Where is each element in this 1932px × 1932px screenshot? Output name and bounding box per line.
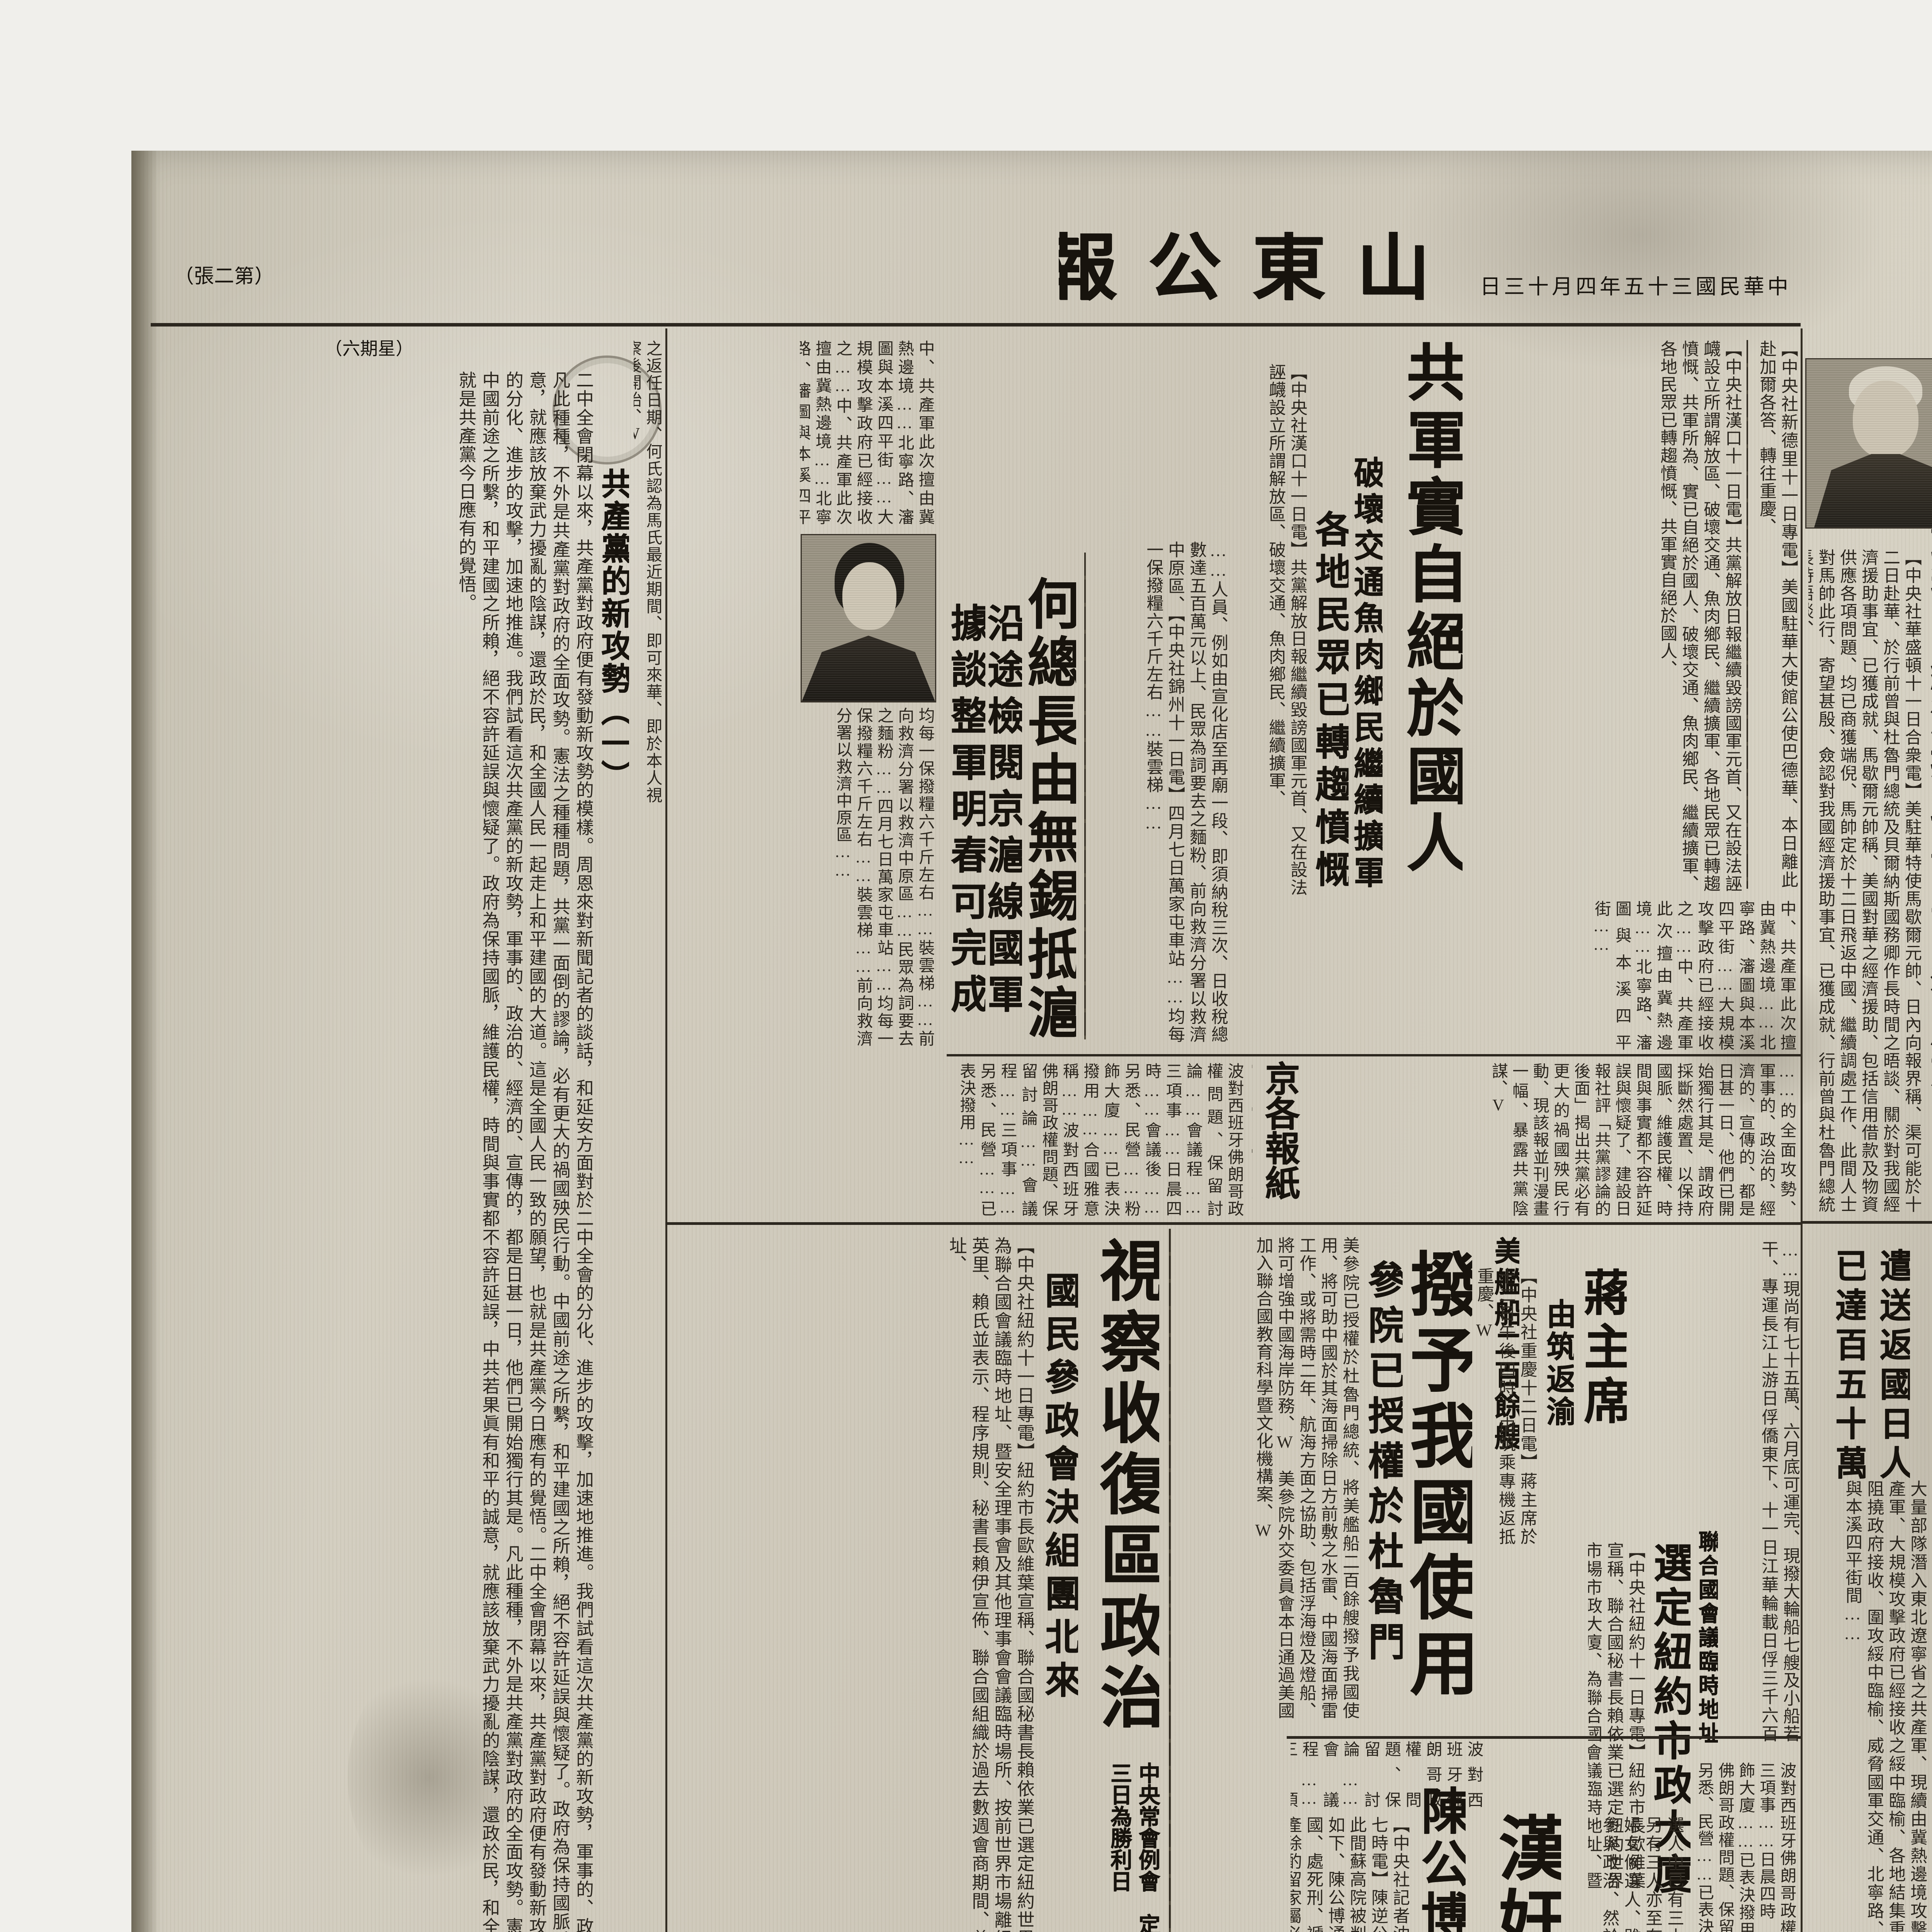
section-rule xyxy=(947,1054,1801,1056)
body-jing: ……的全面攻勢、軍事的、政治的、經濟的、宣傳的、都是日甚一日、他們已開始獨行其是… xyxy=(1314,1063,1797,1217)
subhead-jiang: 由筑返渝 xyxy=(1544,1298,1574,1430)
weekday-label: （星期六） xyxy=(325,340,413,358)
body-meijian-left: 美參院已授權於杜魯門總統、將美艦船二百餘艘撥予我國使用、將可助中國於其海面掃除日… xyxy=(1182,1236,1360,1719)
headline-he: 何總長由無錫抵滬 xyxy=(1022,576,1076,1043)
dateline: 中華民國三十五年四月十三日 xyxy=(1480,276,1791,297)
headline-repatriation-2: 已達百五十萬 xyxy=(1832,1248,1866,1492)
body-he: ……人員、例如由宣化店至再廟一段、即須納稅三次、日收稅總數達五百萬元以上、民眾為… xyxy=(1090,541,1229,1043)
filler-col: 波對西班牙佛朗哥政權問題、保留討論……會議程……三項事……日晨四時……會議後……… xyxy=(1696,1762,1797,1932)
body-dongbei: 【中央社臨榆十一日電】向遼寧省境內北寧路綏中臨榆間集結大量部隊潛入東北遼寧省之共… xyxy=(1808,1480,1932,1932)
subhead-meijian: 參院已授權於杜魯門 xyxy=(1364,1260,1403,1669)
body-gongjun: 【中央社漢口十一日電】共黨解放日報繼續毀謗國軍元首、又在設法誣衊設立所謂解放區、… xyxy=(1488,340,1743,893)
edition-label: （第二張） xyxy=(174,267,274,287)
body-gongjun-right-col: 【中央社新德里十一日專電】美國駐華大使館公使巴德華、本日離此赴加爾各答、轉往重慶… xyxy=(1756,340,1799,889)
thin-divider xyxy=(1747,340,1748,889)
thin-divider xyxy=(1084,553,1086,1039)
editorial-title: 共產黨的新攻勢（一） xyxy=(598,468,629,788)
body-marshall-tail: 之返任日期、何氏認為馬氏最近期間、即可來華、即於本人視察後開始、W xyxy=(634,340,663,804)
filler-col: 中、共產軍此次擅由冀熱邊境……北寧路、瀋圖與本溪四平街……大規模攻擊政府已經接收… xyxy=(800,340,935,526)
headline-gongjun: 共軍實自絕於國人 xyxy=(1401,340,1463,879)
filler-col: 均每一保撥糧六千斤左右……裝雲梯……前向救濟分署以救濟中原區……民眾為詞要去之麵… xyxy=(804,707,935,1047)
editorial-body: 二中全會閉幕以來，共產黨對政府便有發動新攻勢的模樣。周恩來對新聞記者的談話，和延… xyxy=(155,371,595,1932)
headline-changhui: 中央常會例會 定九月三日為勝利日 xyxy=(1103,1762,1161,1932)
body-hanjian: 【中央社記者沈宗琳蘇州十二日下午七時電】陳逆公博、今日下午四時在此間蘇高院被判處… xyxy=(1291,1816,1410,1932)
filler-col: 波對西班牙佛朗哥政權問題、保留討論……會議程……三項事……日晨四時……會議後……… xyxy=(672,1063,1244,1217)
column-divider xyxy=(665,328,667,1932)
headline-hanjian: 漢奸下場 xyxy=(1492,1812,1561,1932)
headline-meijian: 撥予我國使用 xyxy=(1403,1248,1472,1704)
photo-marshall-portrait xyxy=(1806,359,1932,527)
body-japan-election: 選人中已有三十二人、可操勝算、另有三人亦至有望、按此數目顯示婦女候選人、雖係於日… xyxy=(1600,1816,1685,1932)
section-rule xyxy=(1287,1736,1801,1739)
body-shicha-area: 【中央社紐約十一日專電】紐約市長歐維葉宣稱、聯合國秘書長賴依業已選定紐約世界市場… xyxy=(672,1236,1036,1932)
headline-repatriation-1: 遣送返國日人 xyxy=(1876,1248,1910,1492)
masthead-rule xyxy=(151,323,1801,327)
filler-col: 中、共產軍此次擅由冀熱邊境……北寧路、瀋圖與本溪四平街……大規模攻擊政府已經接收… xyxy=(1233,900,1797,1051)
kicker-jing: 京各報紙痛斥共黨 xyxy=(1252,1061,1302,1223)
subhead-gongjun-2: 各地民眾已轉趨憤慨 xyxy=(1312,510,1349,893)
body-repatriation: ……現尚有七十五萬、六月底可運完、現撥大輪船七艘及小船若干、專運長江上游日俘僑東… xyxy=(1760,1240,1801,1743)
newspaper-scan-page: （第二張） （星期六） 山東公報 中華民國三十五年四月十三日 馬歇爾即啓程來華 … xyxy=(0,0,1932,1932)
column-divider xyxy=(1801,328,1803,1932)
subhead-he-1: 沿途檢閱京滬線國軍 xyxy=(983,603,1022,1020)
section-rule xyxy=(1801,1221,1932,1224)
body-marshall: 【中央社華盛頓十一日合衆電】美駐華特使馬歇爾元帥、日內向報界稱、渠可能於十二日赴… xyxy=(1808,549,1922,1213)
section-rule xyxy=(665,1222,1801,1225)
kicker-niuyue: 聯合國會議臨時地址 xyxy=(1696,1530,1718,1747)
masthead-title: 山東公報 xyxy=(1059,232,1461,305)
body-jiang: 【中央社重慶十二日電】蔣主席於十二日午後四時、由筑乘專機返抵重慶、W xyxy=(1468,1267,1538,1546)
subhead-he-2: 據談整軍明春可完成 xyxy=(947,603,985,1020)
thin-divider xyxy=(1169,1229,1171,1932)
headline-chengongbo: 陳公博判死刑 xyxy=(1416,1785,1466,1932)
subhead-marshall-2: 對我國經濟援助事宜已獲成就 xyxy=(1926,520,1932,1103)
subhead-shicha: 國民參政會決組團北來 xyxy=(1041,1271,1078,1704)
body-gongjun-left: 【中央社漢口十一日電】共黨解放日報繼續毀謗國軍元首、又在設法誣衊設立所謂解放區、… xyxy=(1231,363,1308,896)
headline-shicha: 視察收復區政治 xyxy=(1094,1236,1159,1735)
subhead-gongjun-1: 破壞交通魚肉鄉民繼續擴軍 xyxy=(1350,456,1383,893)
headline-jiang: 蔣主席 xyxy=(1578,1267,1627,1434)
photo-woman-portrait xyxy=(802,535,935,701)
